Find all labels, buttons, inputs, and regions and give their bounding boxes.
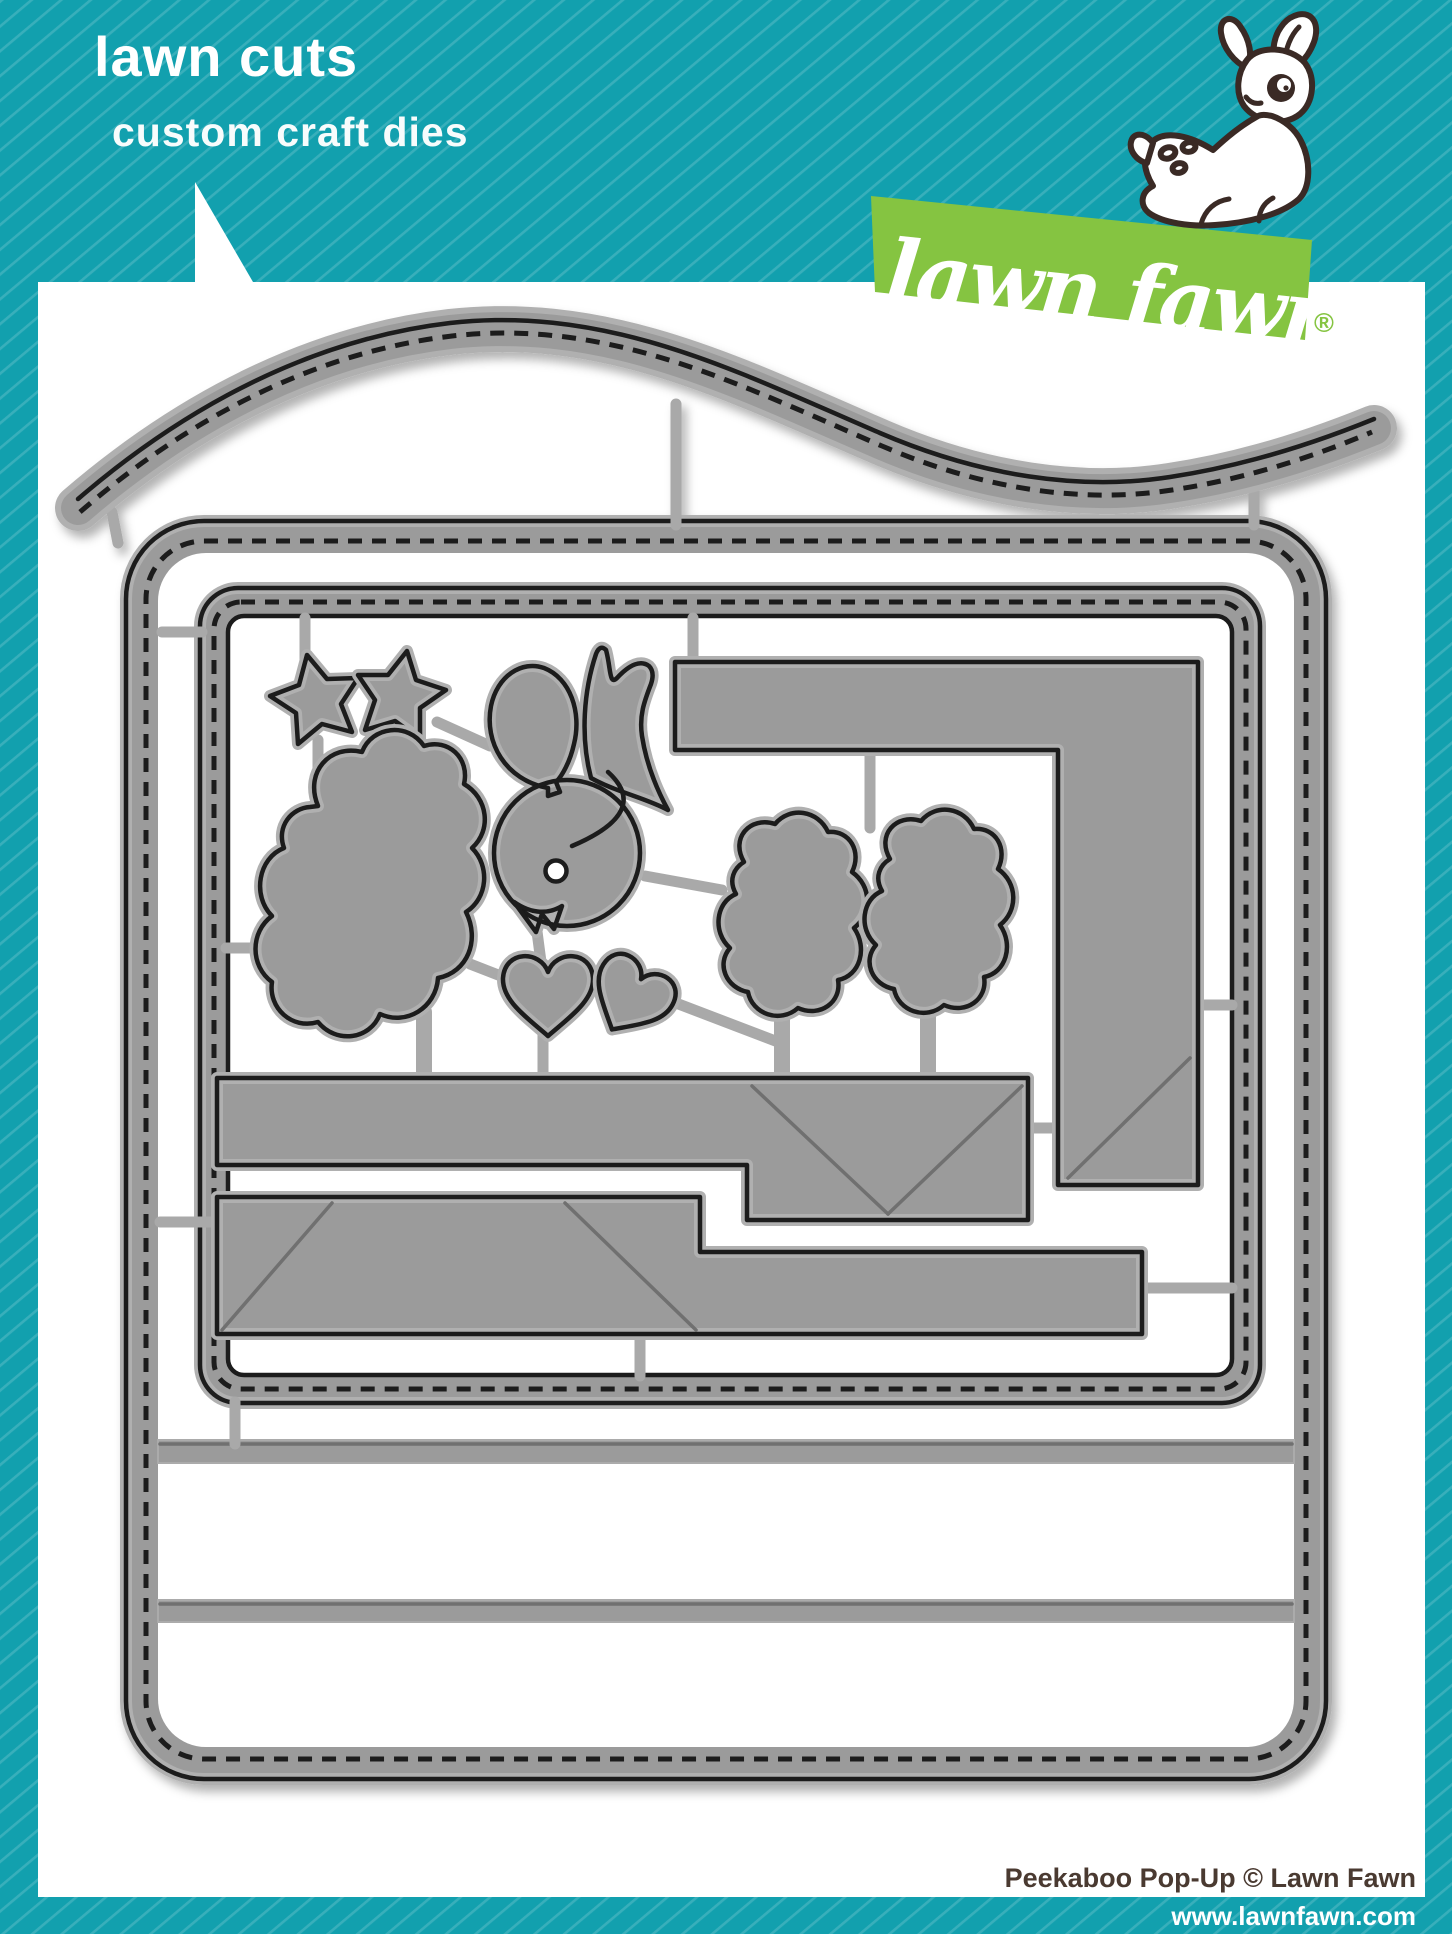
bird-eye-icon	[546, 861, 567, 882]
footer-credit: Peekaboo Pop-Up © Lawn Fawn	[1005, 1863, 1416, 1893]
page-subtitle: custom craft dies	[112, 109, 469, 155]
registered-mark-icon: ®	[1314, 308, 1334, 338]
die-plate	[78, 320, 1374, 1779]
die-set-illustration: lawn cuts custom craft dies lawn fawn ®	[0, 0, 1452, 1934]
footer-website: www.lawnfawn.com	[1170, 1901, 1416, 1931]
product-packaging: lawn cuts custom craft dies lawn fawn ®	[0, 0, 1452, 1934]
page-title: lawn cuts	[94, 25, 358, 88]
